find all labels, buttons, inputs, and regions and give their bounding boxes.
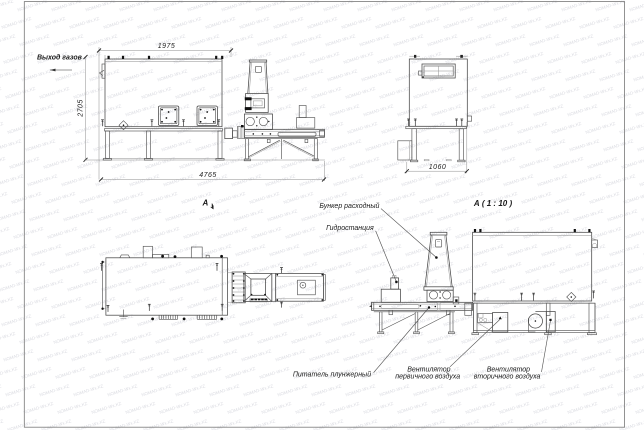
svg-text:Питатель плунжерный: Питатель плунжерный — [293, 370, 371, 378]
svg-text:1975: 1975 — [158, 43, 176, 50]
svg-text:первичного воздуха: первичного воздуха — [395, 373, 460, 381]
svg-text:Вентилятор: Вентилятор — [407, 366, 450, 373]
svg-text:4765: 4765 — [199, 172, 217, 179]
svg-text:Выход газов: Выход газов — [37, 54, 83, 62]
svg-text:Гидростанция: Гидростанция — [326, 224, 374, 232]
svg-text:Вентилятор: Вентилятор — [487, 366, 530, 373]
svg-text:вторичного воздуха: вторичного воздуха — [474, 373, 541, 381]
svg-text:2705: 2705 — [78, 99, 85, 118]
svg-text:1060: 1060 — [429, 164, 447, 171]
svg-text:Бункер расходный: Бункер расходный — [319, 202, 379, 210]
svg-text:А: А — [202, 199, 209, 208]
svg-text:А ( 1 : 10 ): А ( 1 : 10 ) — [473, 199, 513, 208]
